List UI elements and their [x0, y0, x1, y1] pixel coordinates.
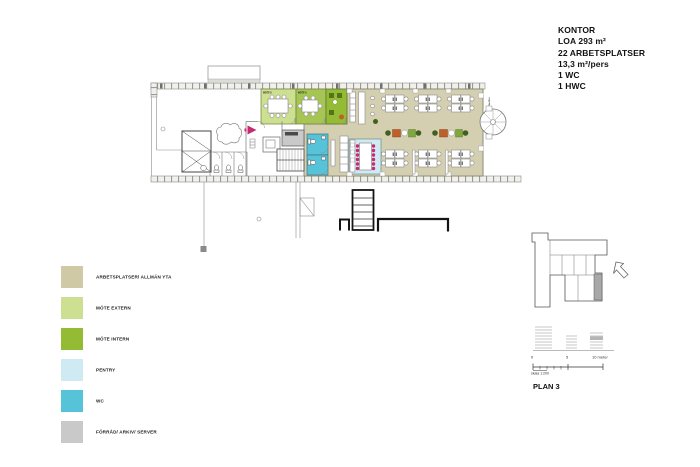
legend-swatch — [61, 266, 83, 288]
info-line: 1 HWC — [558, 81, 645, 92]
legend-item-mote-extern: MÖTE EXTERN — [61, 297, 247, 319]
storage-label-tag — [285, 132, 298, 136]
legend-item-wc: WC — [61, 390, 247, 412]
scale-bar — [533, 364, 603, 371]
key-plan — [532, 233, 628, 307]
legend-item-pentry: PENTRY — [61, 359, 247, 381]
stair-trappa-1 — [277, 149, 304, 171]
scale-zero-label: 0 — [531, 355, 533, 360]
room-label-mote8: MÖTE 8 — [263, 92, 272, 95]
key-plan-highlight — [594, 274, 602, 300]
spiral-stair — [480, 106, 506, 139]
north-arrow-icon — [614, 262, 629, 278]
legend-label: MÖTE EXTERN — [96, 306, 131, 311]
pentry-furniture — [350, 140, 372, 172]
legend-swatch — [61, 421, 83, 443]
info-line: 1 WC — [558, 70, 645, 81]
legend: ARBETSPLATSER/ ALLMÄN YTA MÖTE EXTERN MÖ… — [61, 266, 247, 452]
legend-item-mote-intern: MÖTE INTERN — [61, 328, 247, 350]
legend-item-forrad: FÖRRÅD/ ARKIV/ SERVER — [61, 421, 247, 443]
room-label-mote6: MÖTE 6 — [298, 92, 307, 95]
legend-swatch — [61, 390, 83, 412]
drawing-sheet: MÖTE 8 MÖTE 6 GARDEROB TRAPPA 1 TRAPPA 2 — [0, 0, 700, 467]
cloud-shape — [217, 123, 242, 144]
legend-item-arbetsplatser: ARBETSPLATSER/ ALLMÄN YTA — [61, 266, 247, 288]
legend-label: WC — [96, 399, 104, 404]
legend-swatch — [61, 359, 83, 381]
info-line: 13,3 m²/pers — [558, 59, 645, 70]
plant — [373, 119, 378, 124]
info-panel: KONTOR LOA 293 m² 22 ARBETSPLATSER 13,3 … — [558, 25, 645, 93]
scale-note: skala 1:200 — [531, 372, 549, 376]
legend-label: ARBETSPLATSER/ ALLMÄN YTA — [96, 275, 172, 280]
elevation-sketch — [533, 327, 614, 351]
scale-end-label: 10 meter — [592, 355, 608, 360]
balcony-outline — [208, 66, 260, 83]
info-line: 22 ARBETSPLATSER — [558, 48, 645, 59]
lobby-panel — [250, 139, 255, 148]
elevator-shaft — [182, 131, 211, 172]
info-line: LOA 293 m² — [558, 36, 645, 47]
key-plan-title: PLAN 3 — [533, 382, 560, 391]
legend-label: PENTRY — [96, 368, 115, 373]
legend-swatch — [61, 297, 83, 319]
scale-mid-label: 5 — [566, 355, 568, 360]
legend-swatch — [61, 328, 83, 350]
info-title: KONTOR — [558, 25, 645, 36]
legend-label: FÖRRÅD/ ARKIV/ SERVER — [96, 430, 157, 435]
legend-label: MÖTE INTERN — [96, 337, 129, 342]
